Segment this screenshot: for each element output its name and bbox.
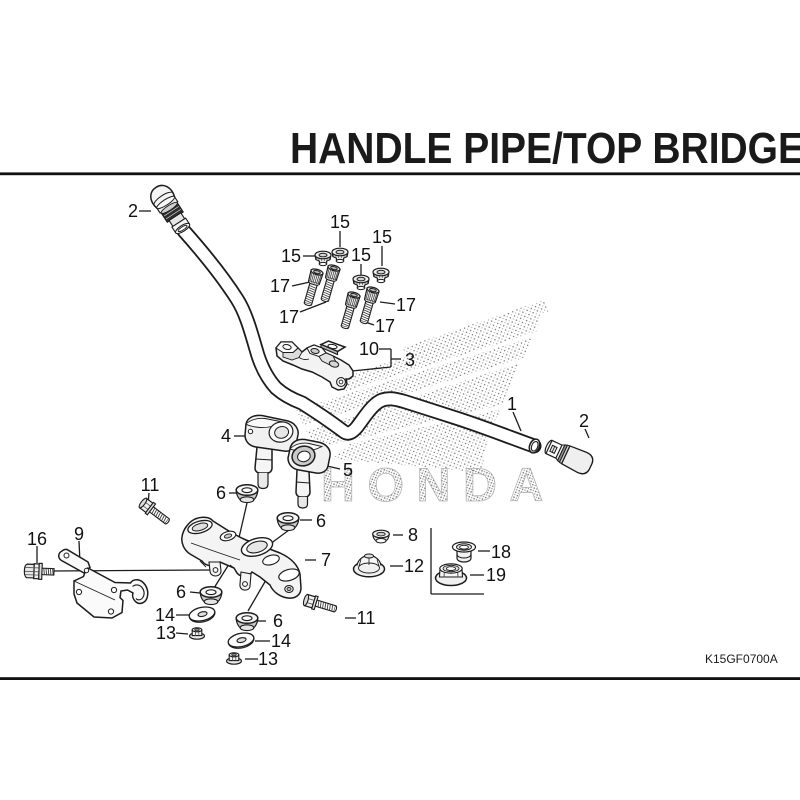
svg-text:14: 14 <box>271 631 291 651</box>
svg-text:6: 6 <box>316 511 326 531</box>
svg-text:6: 6 <box>273 611 283 631</box>
svg-text:19: 19 <box>486 565 506 585</box>
svg-text:HANDLE PIPE/TOP BRIDGE: HANDLE PIPE/TOP BRIDGE <box>290 124 800 173</box>
svg-text:13: 13 <box>258 649 278 669</box>
svg-text:1: 1 <box>507 394 517 414</box>
svg-text:17: 17 <box>375 316 395 336</box>
svg-text:HONDA: HONDA <box>321 458 556 511</box>
svg-text:15: 15 <box>281 246 301 266</box>
svg-text:17: 17 <box>270 276 290 296</box>
svg-text:15: 15 <box>372 227 392 247</box>
svg-text:8: 8 <box>408 525 418 545</box>
svg-text:4: 4 <box>221 426 231 446</box>
svg-text:15: 15 <box>330 212 350 232</box>
svg-text:K15GF0700A: K15GF0700A <box>705 652 778 666</box>
svg-text:17: 17 <box>396 295 416 315</box>
svg-text:2: 2 <box>128 201 138 221</box>
svg-text:11: 11 <box>357 608 376 628</box>
svg-text:5: 5 <box>343 460 353 480</box>
svg-text:14: 14 <box>155 605 175 625</box>
svg-text:16: 16 <box>27 529 47 549</box>
svg-text:17: 17 <box>279 307 299 327</box>
svg-text:3: 3 <box>405 350 415 370</box>
svg-text:15: 15 <box>351 245 371 265</box>
svg-text:12: 12 <box>404 556 424 576</box>
svg-text:6: 6 <box>216 483 226 503</box>
svg-text:11: 11 <box>141 475 160 495</box>
svg-text:2: 2 <box>579 411 589 431</box>
svg-text:7: 7 <box>321 550 331 570</box>
svg-text:10: 10 <box>359 339 379 359</box>
svg-text:6: 6 <box>176 582 186 602</box>
svg-text:13: 13 <box>156 623 176 643</box>
svg-text:9: 9 <box>74 524 84 544</box>
svg-text:18: 18 <box>491 542 511 562</box>
